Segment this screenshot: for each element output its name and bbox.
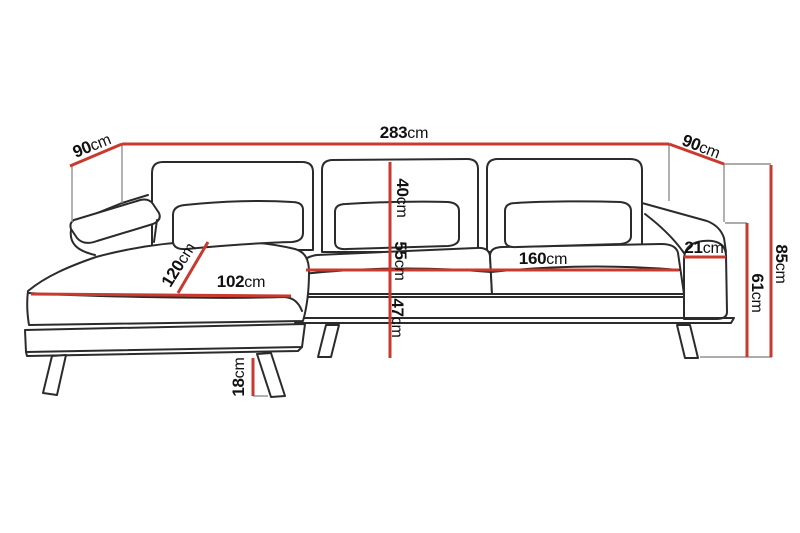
dim-label-seat-height: 47cm [388, 298, 406, 337]
pillow-right [505, 201, 631, 247]
dim-label-leg-height: 18cm [230, 357, 248, 396]
dim-value: 55 [391, 241, 410, 259]
dim-unit: cm [546, 251, 567, 268]
dim-unit: cm [391, 260, 408, 281]
dim-value: 18 [229, 378, 248, 396]
dim-line-chaise-width [31, 294, 291, 296]
dim-label-chaise-width: 102cm [217, 273, 265, 291]
dim-value: 21 [684, 238, 702, 257]
sofa-leg [677, 325, 698, 358]
pillow-chaise [173, 201, 303, 249]
dim-label-overall-height: 85cm [772, 244, 790, 283]
dim-unit: cm [231, 357, 248, 378]
dim-label-seat-width: 160cm [519, 250, 567, 268]
dim-unit: cm [703, 240, 724, 257]
base-rail-bottom [295, 318, 734, 323]
dim-unit: cm [393, 197, 410, 218]
sofa-dimension-diagram: 283cm 90cm 90cm 85cm 61cm 21cm 160cm 40c… [0, 0, 800, 533]
chaise-base [25, 324, 305, 352]
dim-label-seat-depth: 55cm [391, 241, 409, 280]
dim-value: 47 [388, 298, 407, 316]
sofa-line-art [25, 159, 734, 397]
dim-value: 40 [393, 178, 412, 196]
dim-label-armrest-width: 21cm [684, 239, 723, 257]
sofa-leg [43, 355, 66, 395]
dim-unit: cm [772, 263, 789, 284]
dim-unit: cm [244, 274, 265, 291]
dim-value: 102 [217, 272, 244, 291]
dim-value: 160 [519, 249, 546, 268]
dim-value: 85 [772, 244, 791, 262]
dim-label-armrest-height: 61cm [748, 273, 766, 312]
dim-unit: cm [388, 317, 405, 338]
dim-label-overall-width: 283cm [380, 124, 428, 142]
sofa-leg [257, 353, 285, 397]
dim-label-back-cushion-height: 40cm [393, 178, 411, 217]
sofa-leg [318, 325, 339, 357]
dim-value: 61 [748, 273, 767, 291]
dim-value: 283 [380, 123, 407, 142]
dim-unit: cm [748, 292, 765, 313]
dim-unit: cm [407, 125, 428, 142]
